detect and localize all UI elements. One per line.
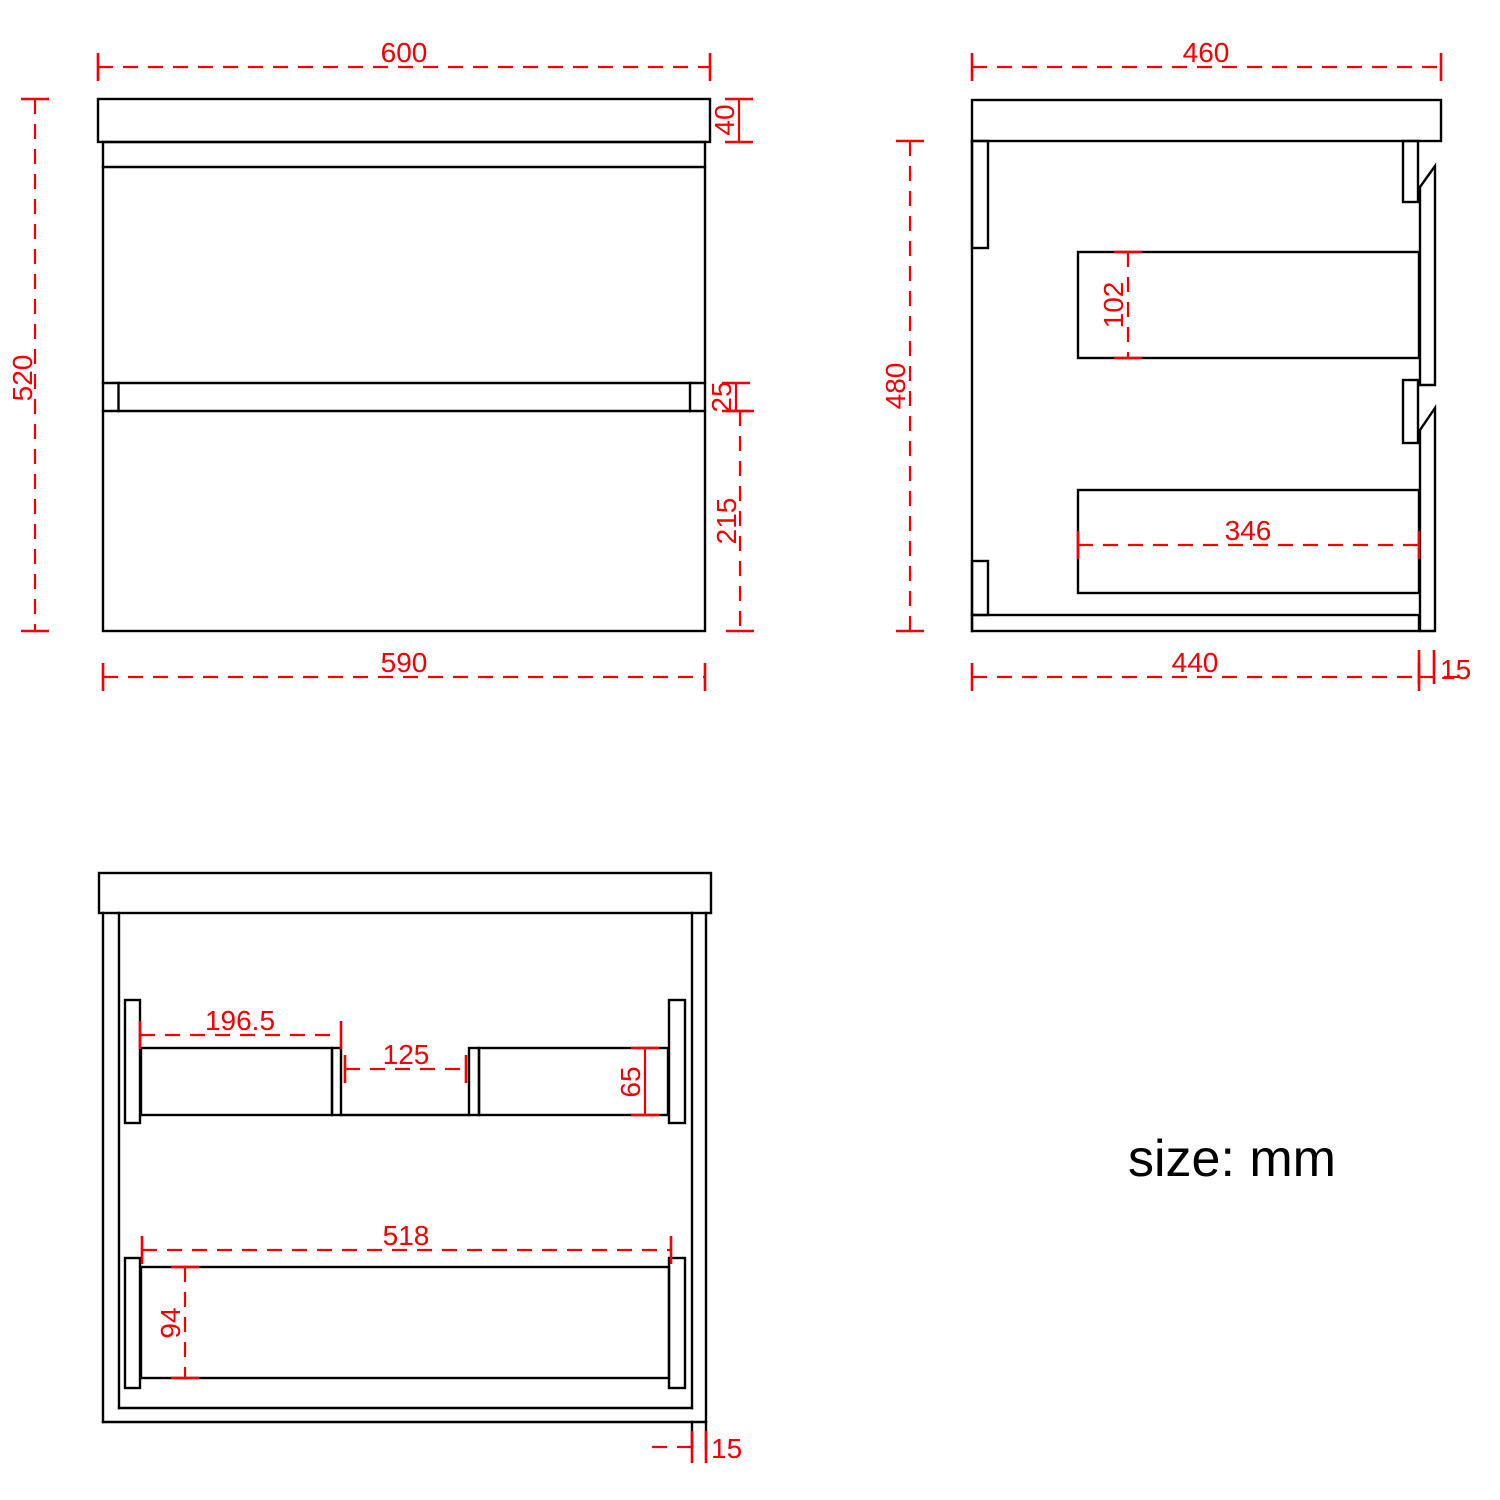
front-gap-side-panels [119,383,691,411]
dim-front-drawer-gap-label: 25 [706,381,737,412]
internal-mid-rail-left-endplate [332,1048,341,1115]
side-drawer-front-lower [1420,408,1435,631]
dim-internal-left-rail-label: 196.5 [205,1005,275,1036]
internal-mid-rail-right-endplate [469,1048,479,1115]
internal-mid-plate-left [125,1000,140,1123]
dim-front-height-total-label: 520 [7,355,38,402]
dim-internal-panel-thickness-ticks [692,1431,706,1463]
internal-bottom-panel [103,1408,706,1422]
side-front-rail-mid [1403,380,1418,443]
units-note: size: mm [1128,1130,1336,1188]
dim-front-width-body-label: 590 [381,647,428,678]
front-countertop [98,99,710,142]
dim-side-depth-top-label: 460 [1183,37,1230,68]
internal-lower-rail [141,1267,669,1378]
side-back-rail-top [972,141,988,248]
side-drawer-box-upper [1078,252,1419,358]
side-view: 460 480 102 346 440 15 [880,37,1471,691]
internal-mid-rail-left [141,1048,332,1115]
side-countertop [972,100,1441,141]
dim-internal-panel-thickness-label: 15 [711,1433,742,1464]
side-bottom-panel [972,615,1419,631]
internal-side-walls [103,913,706,1448]
dim-internal-bottom-rail-label: 518 [383,1220,430,1251]
front-view: 600 520 40 25 215 590 [7,37,754,691]
front-cabinet-body [103,142,705,631]
internal-lower-plate-left [125,1258,140,1388]
front-drawer-gap-lines [103,383,705,411]
dim-front-width-top-label: 600 [381,37,428,68]
dim-front-bottom-drawer-label: 215 [711,498,742,545]
internal-lower-plate-right [669,1258,685,1388]
dim-side-front-thickness-label: 15 [1440,654,1471,685]
dim-internal-rail-height-label: 65 [615,1066,646,1097]
internal-countertop [99,873,711,913]
dim-internal-rail-gap-label: 125 [383,1039,430,1070]
dim-internal-bottom-rail-height-label: 94 [155,1307,186,1338]
dim-side-depth-body-label: 440 [1172,647,1219,678]
side-back-rail-bottom [972,561,988,615]
side-drawer-front-upper [1420,166,1435,385]
dim-side-front-thickness-ticks [1419,650,1434,684]
dim-side-drawer-box-height-label: 102 [1098,282,1129,329]
technical-drawing-canvas: 600 520 40 25 215 590 [0,0,1500,1500]
dim-front-counter-thickness-label: 40 [709,104,740,135]
internal-mid-plate-right [669,1000,685,1123]
internal-view: 196.5 125 65 518 94 15 [99,873,742,1464]
technical-drawing-page: 600 520 40 25 215 590 [0,0,1500,1500]
dim-side-drawer-box-depth-label: 346 [1225,515,1272,546]
side-front-rail-top [1403,141,1418,202]
dim-side-height-body-label: 480 [880,363,911,410]
